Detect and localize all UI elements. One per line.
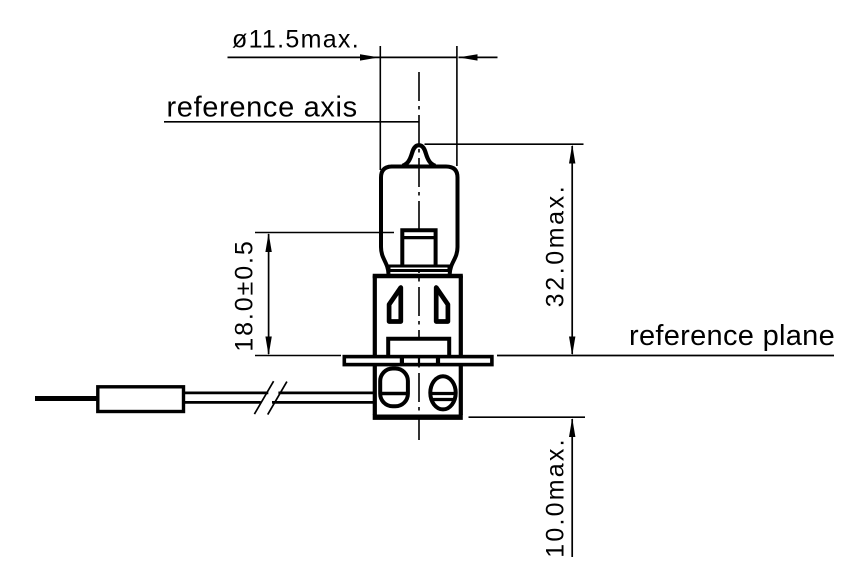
svg-text:18.0±0.5: 18.0±0.5 bbox=[231, 239, 259, 351]
svg-text:reference axis: reference axis bbox=[167, 92, 358, 124]
svg-text:32.0max.: 32.0max. bbox=[542, 184, 570, 308]
svg-text:reference plane: reference plane bbox=[629, 320, 835, 352]
svg-text:ø11.5max.: ø11.5max. bbox=[232, 26, 360, 54]
svg-text:10.0max.: 10.0max. bbox=[542, 437, 570, 557]
